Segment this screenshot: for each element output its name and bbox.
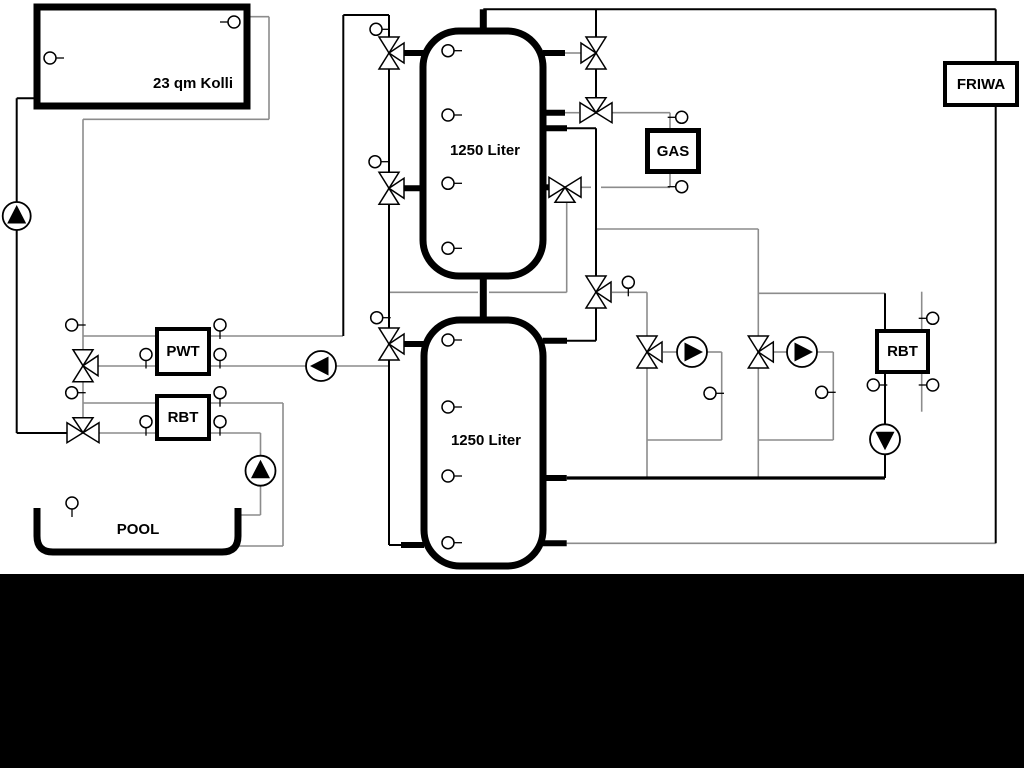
lower-tank-sensor-2-icon (442, 401, 454, 413)
rbt-right-label: RBT (887, 343, 918, 360)
upper-tank-sensor-1-icon (442, 45, 454, 57)
pwt-label: PWT (166, 343, 199, 360)
lower-tank-sensor-1-icon (442, 334, 454, 346)
line-sensor-icon (927, 379, 939, 391)
rbt-right-heat-exchanger-box: RBT (875, 329, 930, 374)
friwa-label: FRIWA (957, 76, 1005, 93)
line-sensor-icon (867, 379, 879, 391)
schematic-canvas: PWT RBT GAS FRIWA RBT 23 qm Kolli 1250 L… (0, 0, 1024, 768)
bottom-black-band (0, 574, 1024, 768)
collector-label: 23 qm Kolli (133, 76, 253, 91)
upper-tank-sensor-2-icon (442, 109, 454, 121)
line-sensor-icon (140, 416, 152, 428)
line-sensor-icon (140, 349, 152, 361)
pool-sensor-icon (66, 497, 78, 509)
upper-tank-sensor-3-icon (442, 177, 454, 189)
friwa-station-box: FRIWA (943, 61, 1019, 107)
gas-return-sensor-icon (676, 181, 688, 193)
pool-label: POOL (78, 522, 198, 537)
line-sensor-icon (704, 387, 716, 399)
lower-tank-sensor-4-icon (442, 537, 454, 549)
gas-supply-sensor-icon (676, 111, 688, 123)
line-sensor-icon (371, 312, 383, 324)
line-sensor-icon (66, 319, 78, 331)
line-sensor-icon (214, 416, 226, 428)
line-sensor-icon (214, 319, 226, 331)
line-sensor-icon (214, 349, 226, 361)
gas-label: GAS (657, 143, 690, 160)
pwt-heat-exchanger-box: PWT (155, 327, 211, 376)
upper-tank-sensor-4-icon (442, 242, 454, 254)
line-sensor-icon (369, 156, 381, 168)
upper-tank-label: 1250 Liter (425, 143, 545, 158)
rbt-pool-label: RBT (168, 409, 199, 426)
collector-sensor-bottom-icon (44, 52, 56, 64)
lower-tank-label: 1250 Liter (426, 433, 546, 448)
line-sensor-icon (66, 387, 78, 399)
line-sensor-icon (370, 23, 382, 35)
gas-boiler-box: GAS (645, 128, 701, 174)
line-sensor-icon (214, 387, 226, 399)
collector-sensor-top-icon (228, 16, 240, 28)
rbt-pool-heat-exchanger-box: RBT (155, 394, 211, 441)
lower-tank-sensor-3-icon (442, 470, 454, 482)
line-sensor-icon (927, 312, 939, 324)
line-sensor-icon (816, 386, 828, 398)
line-sensor-icon (622, 276, 634, 288)
